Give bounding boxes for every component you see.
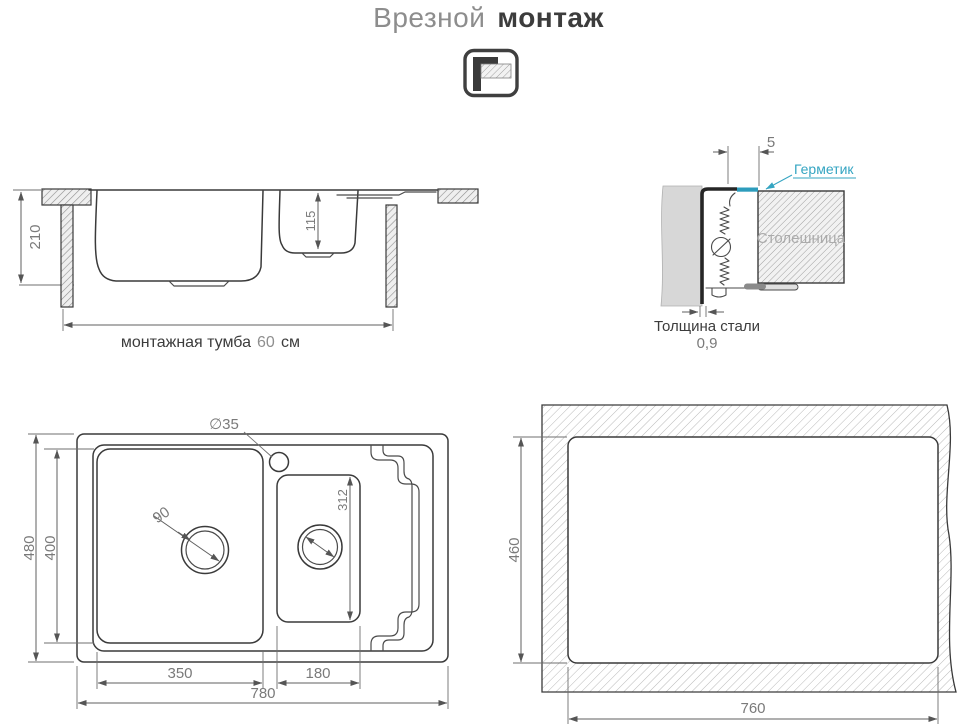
detail-view-section: Столешница 5 Герметик [654, 134, 856, 352]
main-drain-outer [182, 527, 229, 574]
sink-wall-cut [661, 186, 702, 306]
dim-label-210: 210 [27, 224, 44, 249]
dim-label-780: 780 [250, 685, 275, 702]
steel-rim-profile [702, 189, 737, 304]
main-bowl-profile [95, 191, 263, 281]
clamp-loop-pin [713, 239, 730, 255]
cabinet-right-wall [386, 205, 397, 307]
dim-label-gap: 5 [767, 134, 775, 151]
sealant-label: Герметик [794, 161, 854, 177]
clamp-spring-top [720, 207, 729, 234]
cutout-view: 460 760 [506, 405, 956, 724]
dim-label-drain: 90 [150, 504, 173, 527]
sealant-leader [766, 175, 792, 189]
dim-label-480: 480 [21, 535, 38, 560]
technical-drawing: 210 115 монтажная тумба 60 см Столешница [0, 0, 977, 728]
cabinet-left-wall [61, 205, 73, 307]
dim-label-faucet: ∅35 [209, 416, 239, 433]
clamp-spring-bottom [720, 258, 729, 285]
clamp-foot [712, 288, 726, 297]
dim-label-350: 350 [167, 665, 192, 682]
drawing-canvas: Врезноймонтаж [0, 0, 977, 728]
steel-value: 0,9 [697, 335, 718, 352]
faucet-hole [270, 453, 289, 472]
clamp-screw [744, 284, 766, 290]
countertop-left-block [42, 189, 91, 205]
dim-label-460: 460 [506, 537, 523, 562]
dim-label-115: 115 [303, 211, 318, 232]
main-bowl [97, 449, 263, 643]
dim-label-400: 400 [42, 535, 59, 560]
cutout-hole [568, 437, 938, 663]
drainboard-step-line [337, 192, 436, 195]
main-drain-inner [186, 531, 224, 569]
cabinet-unit: см [281, 334, 300, 351]
steel-label: Толщина стали [654, 318, 760, 335]
cabinet-value: 60 [257, 334, 275, 351]
dim-label-760: 760 [740, 700, 765, 717]
top-view: 90 ∅35 480 400 312 [21, 416, 448, 709]
small-drain-diameter-line [306, 537, 334, 557]
side-view-section: 210 115 монтажная тумба 60 см [13, 189, 478, 351]
clamp-hook [730, 193, 735, 206]
dim-label-180: 180 [305, 665, 330, 682]
countertop-label: Столешница [757, 230, 846, 247]
cabinet-label: монтажная тумба [121, 334, 251, 351]
countertop-right-block [438, 189, 478, 203]
sealant-strip [737, 188, 758, 192]
dim-label-312: 312 [335, 489, 350, 511]
small-bowl-profile [279, 191, 358, 253]
